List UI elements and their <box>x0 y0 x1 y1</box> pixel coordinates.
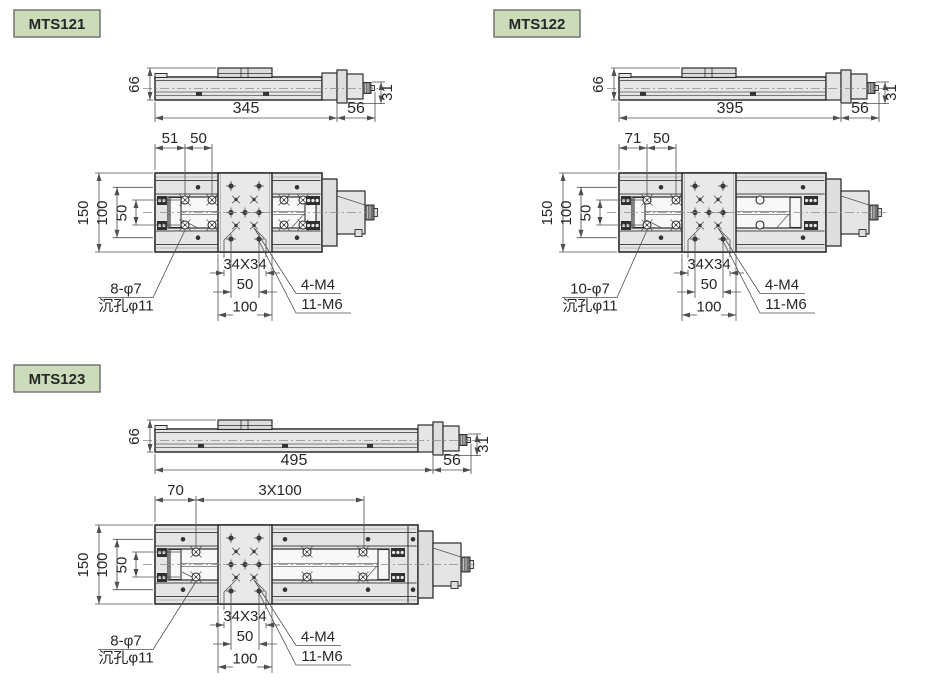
flange-side <box>433 422 443 455</box>
dim-overall-width-label: 150 <box>75 200 92 225</box>
callout-right-line1: 4-M4 <box>301 277 335 294</box>
dim-side-length-label: 345 <box>233 100 260 117</box>
callout-left-line2: 沉孔φ11 <box>562 298 617 315</box>
model-badge-label: MTS121 <box>29 16 86 33</box>
dim-top-chain-1-label: 3X100 <box>258 482 301 499</box>
carriage-side <box>218 68 272 78</box>
dim-top-chain-1-label: 50 <box>653 130 670 147</box>
model-badge-label: MTS123 <box>29 371 86 388</box>
figure-mts122: MTS12266395563115010050715034X345010010-… <box>464 0 929 348</box>
callout-right-line1: 4-M4 <box>765 277 799 294</box>
side-view <box>143 420 475 455</box>
dim-side-height-label: 66 <box>126 428 143 445</box>
dim-side-height-label: 66 <box>126 76 143 93</box>
motor-side <box>851 74 867 99</box>
knob-side <box>363 83 371 94</box>
dim-slot-width-label: 50 <box>114 557 131 574</box>
dim-top-chain-1-label: 50 <box>190 130 207 147</box>
top-view <box>143 525 478 604</box>
dim-slot-width-label: 50 <box>114 205 131 222</box>
model-badge: MTS121 <box>14 10 100 37</box>
dim-slot-width-label: 50 <box>578 205 595 222</box>
callout-left-line1: 8-φ7 <box>110 633 141 650</box>
dim-top-chain-0-label: 51 <box>162 130 179 147</box>
dim-grid-label: 34X34 <box>223 608 266 625</box>
callout-left-line1: 10-φ7 <box>570 281 610 298</box>
dim-row-spacing-label: 100 <box>94 200 111 225</box>
carriage-side <box>218 420 272 430</box>
dim-side-axis-label: 31 <box>475 436 492 453</box>
callout-left-line2: 沉孔φ11 <box>98 650 153 667</box>
flange-side <box>337 70 347 103</box>
dim-plate-width-label: 100 <box>232 299 257 316</box>
top-view <box>607 173 886 252</box>
callout-left-line1: 8-φ7 <box>110 281 141 298</box>
figure-mts121: MTS12166345563115010050515034X34501008-φ… <box>0 0 440 348</box>
dim-grid-label: 34X34 <box>687 256 730 273</box>
dim-side-length-label: 495 <box>281 452 308 469</box>
dim-plate-width-label: 100 <box>696 299 721 316</box>
dim-side-height-label: 66 <box>590 76 607 93</box>
dim-side-axis-label: 31 <box>883 84 900 101</box>
knob-side <box>867 83 875 94</box>
dim-pitch-label: 50 <box>701 276 718 293</box>
dim-overall-width-label: 150 <box>539 200 556 225</box>
side-view <box>607 68 883 103</box>
callout-right-line2: 11-M6 <box>301 296 342 313</box>
dim-plate-width-label: 100 <box>232 651 257 668</box>
dim-pitch-label: 50 <box>237 628 254 645</box>
dim-side-end-label: 56 <box>443 452 461 469</box>
callout-right-line1: 4-M4 <box>301 629 335 646</box>
callout-right-line2: 11-M6 <box>301 648 342 665</box>
top-view <box>143 173 382 252</box>
dim-grid-label: 34X34 <box>223 256 266 273</box>
dim-side-end-label: 56 <box>347 100 365 117</box>
dim-row-spacing-label: 100 <box>94 552 111 577</box>
dim-side-axis-label: 31 <box>379 84 396 101</box>
dim-top-chain-0-label: 70 <box>167 482 184 499</box>
model-badge: MTS123 <box>14 365 100 392</box>
dim-side-end-label: 56 <box>851 100 869 117</box>
model-badge-label: MTS122 <box>509 16 566 33</box>
dim-side-length-label: 395 <box>717 100 744 117</box>
side-view <box>143 68 379 103</box>
carriage-side <box>682 68 736 78</box>
callout-right-line2: 11-M6 <box>765 296 806 313</box>
callout-left-line2: 沉孔φ11 <box>98 298 153 315</box>
knob-side <box>459 435 467 446</box>
model-badge: MTS122 <box>494 10 580 37</box>
dim-row-spacing-label: 100 <box>558 200 575 225</box>
drawing-sheet: MTS12166345563115010050515034X34501008-φ… <box>0 0 929 699</box>
flange-side <box>841 70 851 103</box>
motor-side <box>347 74 363 99</box>
figure-mts123: MTS12366495563115010050703X10034X3450100… <box>0 352 529 699</box>
dim-top-chain-0-label: 71 <box>625 130 642 147</box>
dim-pitch-label: 50 <box>237 276 254 293</box>
motor-side <box>443 426 459 451</box>
dim-overall-width-label: 150 <box>75 552 92 577</box>
